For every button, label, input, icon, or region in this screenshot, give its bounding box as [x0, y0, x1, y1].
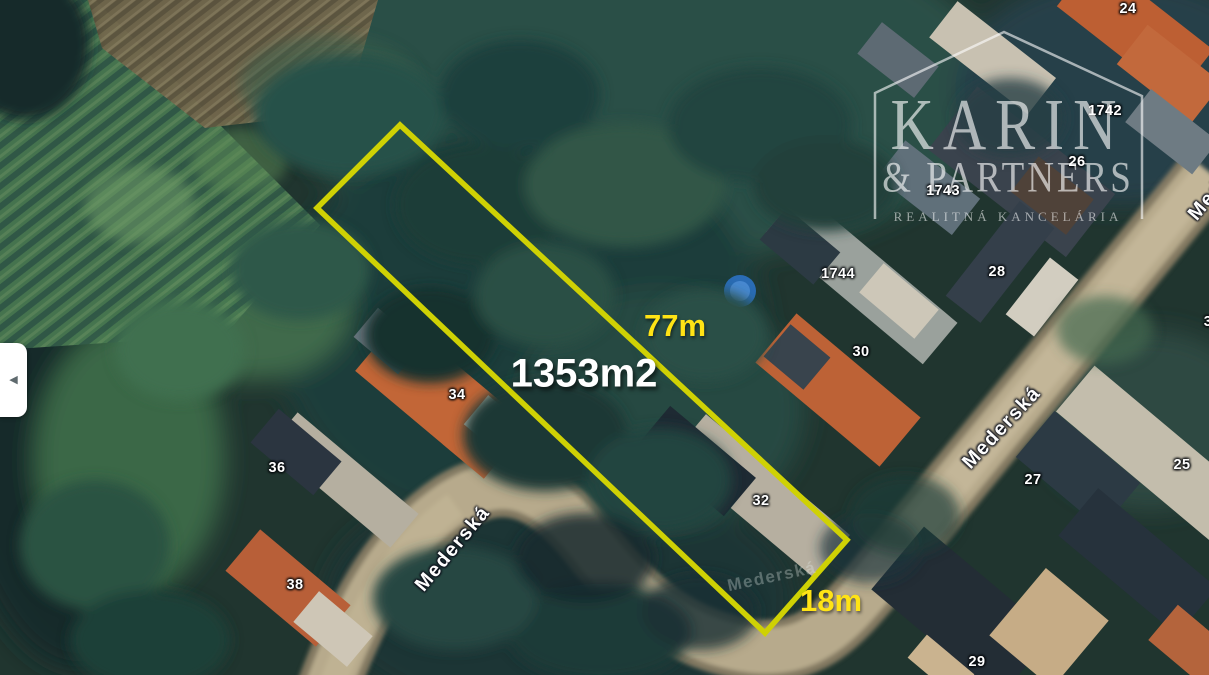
map-viewport[interactable]: 24174226174317442830343236382725293Meder…: [0, 0, 1209, 675]
collapse-panel-button[interactable]: ◀: [0, 343, 27, 417]
chevron-left-icon: ◀: [9, 375, 17, 386]
satellite-map: [0, 0, 1209, 675]
